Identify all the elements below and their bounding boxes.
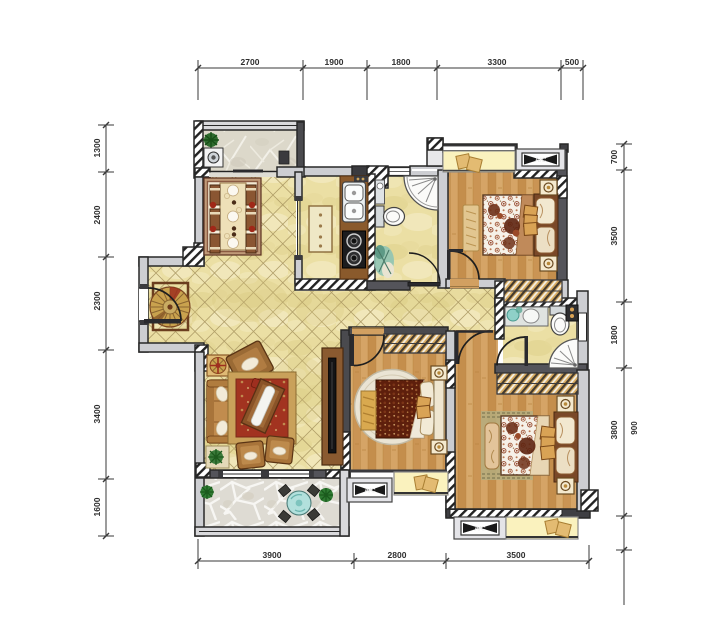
svg-text:900: 900 (630, 421, 639, 435)
svg-text:2300: 2300 (92, 291, 102, 310)
svg-text:500: 500 (565, 57, 579, 67)
svg-text:2800: 2800 (388, 550, 407, 560)
svg-text:1300: 1300 (92, 138, 102, 157)
svg-text:3400: 3400 (92, 404, 102, 423)
svg-text:1800: 1800 (392, 57, 411, 67)
svg-text:1900: 1900 (325, 57, 344, 67)
svg-text:1600: 1600 (92, 497, 102, 516)
svg-text:A/C: A/C (364, 488, 376, 495)
svg-text:2400: 2400 (92, 205, 102, 224)
svg-text:3800: 3800 (609, 420, 619, 439)
svg-text:3900: 3900 (263, 550, 282, 560)
svg-text:1800: 1800 (609, 325, 619, 344)
svg-text:A/C: A/C (474, 526, 486, 533)
svg-text:A/C: A/C (535, 157, 547, 164)
svg-text:3500: 3500 (507, 550, 526, 560)
svg-text:3300: 3300 (488, 57, 507, 67)
svg-text:700: 700 (609, 150, 619, 164)
svg-text:3500: 3500 (609, 226, 619, 245)
svg-text:2700: 2700 (241, 57, 260, 67)
